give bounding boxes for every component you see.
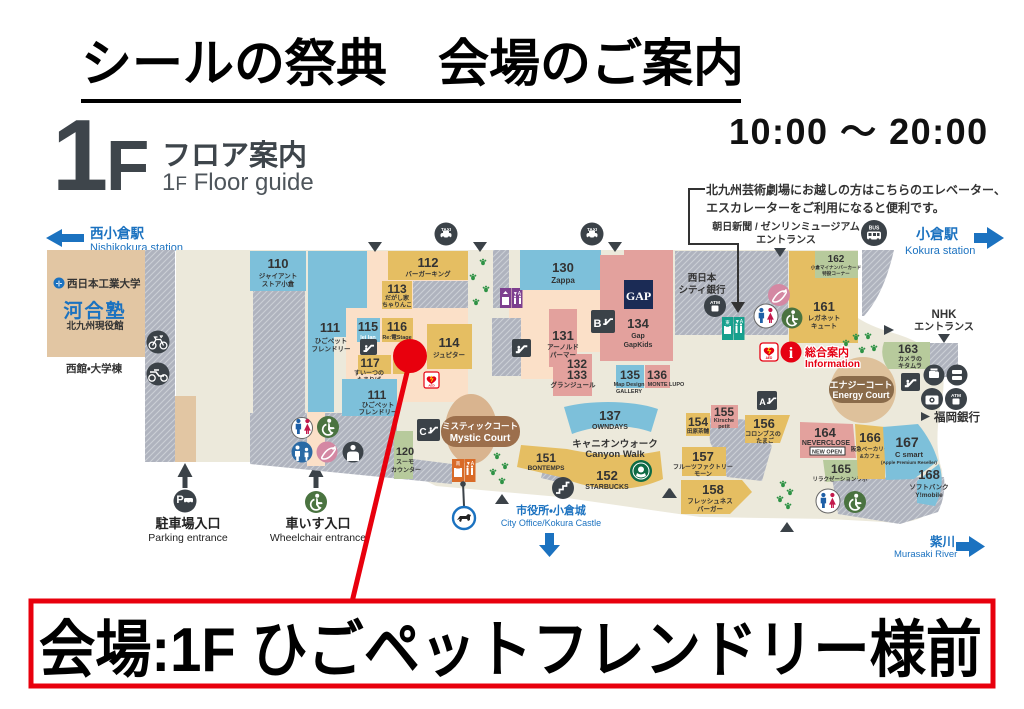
svg-text:河合塾: 河合塾	[63, 300, 126, 322]
svg-text:166: 166	[859, 430, 881, 445]
svg-text:113: 113	[387, 282, 407, 296]
svg-text:Wheelchair entrance: Wheelchair entrance	[270, 532, 366, 544]
svg-text:エントランス: エントランス	[756, 234, 816, 246]
svg-text:Information: Information	[805, 359, 860, 370]
svg-text:BUS: BUS	[869, 226, 880, 232]
svg-text:特設コーナー: 特設コーナー	[822, 270, 850, 277]
svg-text:スーモ: スーモ	[396, 459, 414, 466]
svg-text:B: B	[594, 318, 602, 330]
svg-text:カウンター: カウンター	[391, 466, 421, 474]
svg-text:135: 135	[620, 368, 640, 382]
svg-text:C smart: C smart	[895, 450, 923, 459]
svg-text:北九州芸術劇場にお越しの方はこちらのエレベーター、: 北九州芸術劇場にお越しの方はこちらのエレベーター、	[706, 182, 1006, 197]
svg-text:ATM: ATM	[951, 393, 961, 399]
svg-text:151: 151	[536, 451, 556, 465]
svg-text:i: i	[789, 345, 794, 362]
svg-text:ATM: ATM	[710, 300, 720, 306]
svg-text:MONTE LUPO: MONTE LUPO	[648, 382, 685, 388]
svg-text:petit: petit	[718, 424, 730, 430]
svg-text:133: 133	[567, 368, 587, 382]
svg-text:エナジーコート: エナジーコート	[829, 380, 892, 390]
svg-text:ミスティックコート: ミスティックコート	[442, 421, 518, 431]
svg-text:モーン: モーン	[694, 471, 712, 478]
svg-text:バーガーキング: バーガーキング	[405, 269, 451, 278]
svg-text:エスカレーターをご利用になると便利です。: エスカレーターをご利用になると便利です。	[706, 200, 945, 215]
svg-text:西館・大学棟: 西館・大学棟	[66, 362, 123, 375]
svg-text:155: 155	[714, 405, 734, 419]
svg-text:たまご: たまご	[756, 437, 774, 445]
svg-text:キュート: キュート	[811, 322, 837, 330]
svg-text:グランジュール: グランジュール	[550, 380, 596, 389]
svg-text:137: 137	[599, 408, 621, 423]
svg-text:156: 156	[753, 416, 775, 431]
svg-text:165: 165	[831, 462, 851, 476]
svg-text:福岡銀行: 福岡銀行	[933, 410, 980, 424]
svg-text:NEW OPEN: NEW OPEN	[812, 450, 842, 456]
svg-text:117: 117	[360, 356, 380, 370]
svg-text:BONTEMPS: BONTEMPS	[528, 465, 566, 472]
svg-text:紫川: 紫川	[930, 534, 955, 549]
svg-text:134: 134	[627, 316, 649, 331]
svg-text:市役所・小倉城: 市役所・小倉城	[516, 503, 586, 517]
svg-text:フレンドリー: フレンドリー	[359, 408, 398, 416]
svg-text:(Apple Premium Reseller): (Apple Premium Reseller)	[881, 460, 937, 465]
svg-text:フレンドリー: フレンドリー	[312, 345, 351, 353]
svg-text:ひごペット: ひごペット	[315, 336, 348, 345]
svg-text:157: 157	[692, 449, 714, 464]
svg-text:フレッシュネス: フレッシュネス	[687, 497, 733, 505]
svg-text:✛: ✛	[56, 280, 63, 289]
svg-text:ひごペット: ひごペット	[362, 400, 395, 409]
svg-text:南: 南	[456, 460, 461, 466]
svg-text:ジャイアント: ジャイアント	[259, 272, 297, 280]
svg-text:OWNDAYS: OWNDAYS	[592, 424, 628, 431]
svg-text:130: 130	[552, 260, 574, 275]
svg-text:カメラの: カメラの	[898, 356, 922, 363]
svg-text:Energy Court: Energy Court	[832, 390, 889, 400]
svg-text:阪急ベーカリー: 阪急ベーカリー	[851, 445, 890, 453]
svg-text:111: 111	[368, 388, 387, 402]
svg-text:GALLERY: GALLERY	[616, 389, 642, 395]
svg-text:フルーツファクトリー: フルーツファクトリー	[673, 463, 733, 471]
svg-text:167: 167	[895, 434, 919, 450]
svg-text:ストア小倉: ストア小倉	[262, 279, 295, 288]
svg-text:A: A	[759, 397, 766, 407]
svg-text:116: 116	[387, 320, 407, 334]
svg-text:Gap: Gap	[631, 333, 645, 340]
svg-text:フロア案内: フロア案内	[162, 139, 307, 172]
svg-text:F: F	[106, 127, 149, 206]
svg-text:Parking entrance: Parking entrance	[148, 532, 228, 544]
svg-text:AED: AED	[428, 384, 435, 388]
svg-text:GAP: GAP	[626, 289, 651, 303]
svg-text:会場:1F ひごペットフレンドリー様前: 会場:1F ひごペットフレンドリー様前	[39, 616, 982, 685]
svg-text:Mystic Court: Mystic Court	[450, 433, 511, 444]
svg-text:総合案内: 総合案内	[804, 345, 849, 359]
svg-text:西日本工業大学: 西日本工業大学	[67, 277, 141, 290]
svg-text:161: 161	[813, 299, 835, 314]
svg-text:1: 1	[52, 100, 108, 212]
svg-text:Canyon Walk: Canyon Walk	[585, 449, 645, 460]
svg-text:C: C	[419, 427, 426, 438]
svg-text:158: 158	[702, 482, 724, 497]
svg-text:NEVERCLOSE: NEVERCLOSE	[802, 440, 851, 447]
svg-text:車いす入口: 車いす入口	[285, 516, 350, 531]
svg-text:西日本: 西日本	[688, 272, 717, 284]
svg-text:&カフェ: &カフェ	[860, 453, 880, 460]
svg-text:コロンブスの: コロンブスの	[745, 430, 781, 438]
svg-text:シティ銀行: シティ銀行	[679, 284, 726, 296]
svg-text:小倉マイナンバーカード: 小倉マイナンバーカード	[811, 264, 862, 271]
svg-text:レガネット: レガネット	[808, 313, 841, 322]
svg-text:西小倉駅: 西小倉駅	[90, 225, 144, 241]
svg-text:AED: AED	[766, 356, 773, 360]
svg-text:駐車場入口: 駐車場入口	[154, 516, 220, 531]
svg-text:163: 163	[898, 342, 918, 356]
svg-text:Y!mobile: Y!mobile	[915, 492, 943, 499]
svg-text:Zappa: Zappa	[551, 276, 575, 285]
svg-text:ソフトバンク: ソフトバンク	[909, 482, 948, 491]
svg-text:朝日新聞 / ゼンリンミュージアム: 朝日新聞 / ゼンリンミュージアム	[712, 220, 859, 233]
svg-text:ちゃりんこ: ちゃりんこ	[382, 301, 412, 309]
svg-text:ジュピター: ジュピター	[433, 350, 465, 359]
svg-text:111: 111	[320, 320, 340, 335]
svg-text:小倉駅: 小倉駅	[916, 226, 959, 242]
svg-text:シールの祭典 会場のご案内: シールの祭典 会場のご案内	[81, 35, 744, 92]
svg-text:152: 152	[596, 468, 618, 483]
svg-text:Kokura station: Kokura station	[905, 245, 975, 257]
svg-text:バーガー: バーガー	[697, 504, 723, 513]
svg-text:168: 168	[918, 467, 940, 482]
svg-text:154: 154	[688, 415, 708, 429]
svg-text:だがし家: だがし家	[385, 294, 409, 302]
svg-text:エントランス: エントランス	[914, 321, 974, 333]
svg-text:162: 162	[828, 254, 845, 265]
svg-text:田原茶舗: 田原茶舗	[687, 427, 710, 435]
svg-text:Murasaki River: Murasaki River	[894, 549, 957, 560]
svg-text:アーノルド: アーノルド	[547, 343, 579, 351]
svg-text:キタムラ: キタムラ	[898, 362, 922, 370]
svg-text:GapKids: GapKids	[624, 342, 653, 349]
svg-text:City Office/Kokura Castle: City Office/Kokura Castle	[501, 518, 601, 528]
svg-text:131: 131	[552, 328, 574, 343]
svg-text:120: 120	[396, 446, 414, 458]
svg-text:164: 164	[814, 425, 836, 440]
svg-text:114: 114	[439, 335, 461, 350]
svg-text:112: 112	[418, 255, 439, 270]
svg-text:115: 115	[358, 320, 378, 334]
svg-text:P: P	[176, 494, 183, 506]
svg-text:Map Design: Map Design	[614, 382, 646, 388]
svg-text:北九州現役館: 北九州現役館	[66, 320, 124, 332]
svg-text:10:00 ～ 20:00: 10:00 ～ 20:00	[729, 111, 989, 152]
svg-text:1F Floor guide: 1F Floor guide	[162, 169, 314, 196]
svg-text:NHK: NHK	[932, 309, 958, 321]
svg-text:STARBUCKS: STARBUCKS	[585, 484, 629, 491]
svg-text:110: 110	[268, 256, 289, 271]
svg-text:136: 136	[647, 368, 667, 382]
svg-text:すいーつの: すいーつの	[354, 369, 384, 377]
